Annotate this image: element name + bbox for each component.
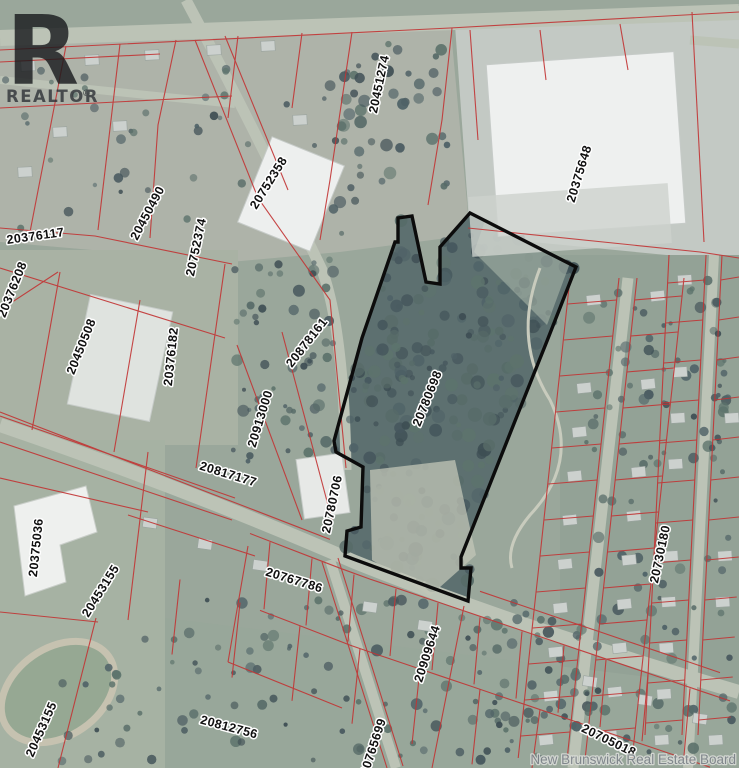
tree [242,388,246,392]
tree [509,716,520,727]
tree [349,443,359,453]
tree [377,320,387,330]
tree [58,679,66,687]
tree [147,755,156,764]
tree [287,647,291,651]
tree [687,288,694,295]
tree [189,709,198,718]
tree [377,343,389,355]
house [607,686,622,697]
house [708,735,723,746]
tree [195,124,200,129]
tree [355,73,365,83]
house [562,514,577,525]
tree [473,261,484,272]
tree [366,395,378,407]
house [654,735,669,746]
tree [429,424,442,437]
tree [419,310,425,316]
tree [137,711,142,716]
tree [477,331,489,343]
tree [390,300,403,313]
house [18,167,33,178]
tree [397,98,408,109]
house [657,689,672,700]
tree [672,628,680,636]
tree [116,695,125,704]
tree [317,383,326,392]
house [668,459,683,470]
tree [384,167,397,180]
tree [466,332,472,338]
tree [483,439,495,451]
tree [439,364,447,372]
tree [270,695,278,703]
tree [83,681,89,687]
tree [432,410,445,423]
tree [396,438,404,446]
tree [231,266,238,273]
tree [654,459,662,467]
tree [462,460,474,472]
tree [456,748,465,757]
tree [440,311,450,321]
tree [469,644,476,651]
house [718,551,733,562]
tree [215,645,221,651]
tree [607,496,616,505]
tree [368,138,375,145]
tree [177,715,188,726]
tree [447,394,457,404]
tree [543,626,554,637]
tree [48,157,53,162]
tree [255,263,263,271]
tree [699,427,708,436]
tree [595,687,602,694]
house [362,601,377,613]
tree [413,294,423,304]
tree [456,394,467,405]
tree [357,172,364,179]
tree [447,242,458,253]
tree [351,197,359,205]
tree [410,740,416,746]
tree [451,353,457,359]
tree [106,704,112,710]
tree [478,462,485,469]
tree [428,329,439,340]
tree [669,321,673,325]
tree [385,409,399,423]
house [539,734,554,745]
tree [435,44,447,56]
tree [503,727,508,732]
house [207,45,222,56]
tree [130,129,138,137]
tree [522,611,529,618]
tree [675,563,686,574]
tree [643,572,648,577]
tree [471,475,484,488]
tree [105,664,113,672]
tree [485,456,494,465]
tree [238,738,246,746]
tree [545,666,553,674]
tree [254,320,259,325]
tree [690,364,699,373]
tree [585,708,593,716]
house [572,426,587,437]
tree [462,428,476,442]
tree [496,722,503,729]
tree [330,340,336,346]
tree [588,419,599,430]
tree [246,459,251,464]
tree [593,532,604,543]
tree [688,453,699,464]
tree [482,651,487,656]
tree [322,338,331,347]
tree [210,112,219,121]
tree [311,260,316,265]
tree [123,725,130,732]
tree [252,314,258,320]
tree [721,370,728,377]
tree [388,89,398,99]
house [671,413,686,424]
tree [399,375,406,382]
tree [256,289,265,298]
tree [465,635,470,640]
tree [441,681,452,692]
tree [64,207,74,217]
tree [327,266,339,278]
tree [422,285,429,292]
tree [286,407,293,414]
tree [640,309,648,317]
tree [205,694,211,700]
tree [492,644,502,654]
tree [234,319,240,325]
house [659,643,674,654]
tree [347,184,354,191]
tree [720,469,725,474]
tree [109,681,115,687]
tree [485,709,494,718]
tree [114,173,124,183]
tree [467,363,478,374]
tree [507,638,518,649]
tree [258,305,266,313]
tree [293,285,305,297]
tree [170,660,175,665]
tree [692,655,697,660]
tree [468,408,482,422]
tree [500,679,510,689]
tree [240,309,247,316]
house [252,559,267,571]
house [548,646,563,657]
tree [341,138,348,145]
tree [284,101,290,107]
tree [508,336,514,342]
tree [271,386,275,390]
tree [511,374,524,387]
tree [303,448,313,458]
tree [381,377,392,388]
tree [379,178,386,185]
tree [311,758,316,763]
tree [351,387,357,393]
tree [599,494,608,503]
tree [364,346,374,356]
tree [483,747,491,755]
tree [452,430,463,441]
tree [512,614,522,624]
tree [329,204,339,214]
tree [427,339,435,347]
tree [322,284,331,293]
tree [493,384,500,391]
tree [584,440,588,444]
tree [473,381,480,388]
tree [727,702,737,712]
tree [231,448,236,453]
registered-trademark-icon: ® [82,89,91,99]
tree [403,318,410,325]
house [293,115,308,126]
tree [311,688,317,694]
tree [395,143,405,153]
house [553,602,568,613]
tree [716,393,721,398]
tree [368,365,381,378]
tree [391,343,400,352]
tree [277,270,284,277]
tree [157,687,162,692]
tree [190,174,198,182]
tree [639,394,650,405]
tree [502,314,515,327]
tree [401,294,413,306]
tree [231,702,239,710]
tree [98,751,105,758]
tree [505,747,511,753]
tree [263,640,274,651]
tree [523,708,533,718]
tree [343,108,355,120]
tree [350,90,358,98]
map-canvas: 20451274 20752358 20375648 20376117 2045… [0,0,739,768]
tree [195,667,202,674]
tree [502,628,508,634]
tree [413,93,424,104]
tree [691,605,696,610]
tree [390,330,399,339]
tree [648,455,653,460]
tree [396,595,407,606]
tree [363,452,376,465]
tree [531,716,539,724]
tree [304,605,309,610]
tree [280,415,290,425]
tree [409,360,415,366]
tree [548,617,557,626]
tree [710,455,717,462]
tree [473,626,481,634]
tree [593,390,602,399]
tree [412,342,423,353]
tree [324,606,333,615]
tree [314,596,322,604]
tree [21,112,29,120]
tree [430,349,435,354]
house [692,713,707,725]
tree [646,335,654,343]
tree [356,699,362,705]
tree [531,694,539,702]
tree [432,87,441,96]
tree [449,415,458,424]
tree [237,405,249,417]
tree [286,448,291,453]
tree [116,134,126,144]
tree [704,555,711,562]
house [673,367,688,378]
tree [112,670,121,679]
tree [376,456,385,465]
tree [312,143,317,148]
tree [313,399,325,411]
tree [592,447,597,452]
tree [257,700,267,710]
house [261,41,276,52]
tree [326,257,333,264]
tree [585,691,590,696]
tree [619,448,627,456]
tree [299,425,305,431]
tree [246,647,254,655]
tree [388,597,397,606]
tree [665,725,672,732]
house [85,55,100,66]
tree [363,486,371,494]
tree [583,312,595,324]
tree [222,68,229,75]
tree [385,41,391,47]
house [113,121,128,132]
tree [320,436,332,448]
tree [25,121,30,126]
tree [678,740,683,745]
tree [537,616,545,624]
tree [407,631,414,638]
tree [373,421,378,426]
tree [268,271,273,276]
tree [94,728,99,733]
tree [323,353,332,362]
tree [181,727,188,734]
tree [426,133,438,145]
tree [303,652,309,658]
tree [283,404,287,408]
tree [526,719,530,723]
tree [719,402,729,412]
house [558,558,573,569]
house [677,275,692,286]
tree [473,699,479,705]
tree [441,183,448,190]
tree [247,302,255,310]
tree [492,700,497,705]
tree [484,345,492,353]
tree [84,755,92,763]
tree [354,146,364,156]
tree [380,139,393,152]
tree [119,190,123,194]
tree [362,382,369,389]
house [725,413,739,424]
house [626,510,641,521]
tree [527,680,536,689]
tree [343,695,349,701]
tree [395,246,407,258]
tree [93,183,97,187]
house [622,554,637,565]
tree [289,305,299,315]
house [641,378,656,389]
tree [594,568,603,577]
tree [483,412,497,426]
tree [726,655,732,661]
tree [192,660,197,665]
tree [245,141,251,147]
tree [429,68,439,78]
tree [505,361,517,373]
house [577,382,592,393]
tree [238,179,246,187]
tree [184,628,195,639]
tree [718,566,726,574]
tree [260,633,268,641]
tree [205,598,210,603]
house [617,598,632,609]
house [142,517,157,529]
tree [379,435,390,446]
tree [408,390,414,396]
tree [340,728,346,734]
road [690,40,739,44]
aerial-map-svg: 20451274 20752358 20375648 20376117 2045… [0,0,739,768]
tree [284,723,288,727]
tree [628,499,634,505]
tree [395,256,403,264]
tree [81,73,89,81]
tree [423,708,428,713]
house [612,642,627,653]
tree [354,116,367,129]
tree [725,535,731,541]
house [631,466,646,477]
tree [477,287,489,299]
tree [420,746,428,754]
tree [405,71,411,77]
tree [444,142,451,149]
tree [387,295,393,301]
tree [495,340,502,347]
tree [268,630,279,641]
